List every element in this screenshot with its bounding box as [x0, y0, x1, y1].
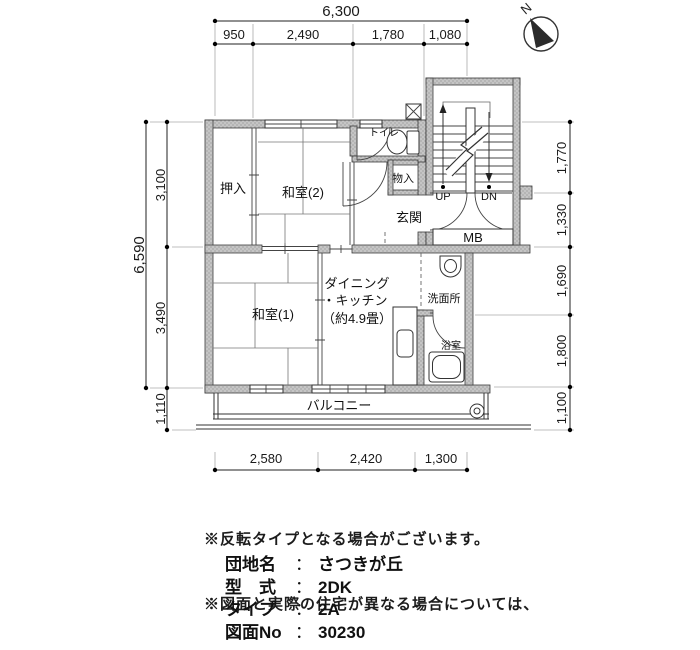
- dim-top-2: 2,490: [287, 27, 320, 42]
- dim-bottom-1: 2,580: [250, 451, 283, 466]
- info-label: 団地名: [225, 554, 293, 577]
- shaft-x-symbol: [406, 104, 421, 119]
- dim-top-1: 950: [223, 27, 245, 42]
- info-colon: ：: [295, 554, 312, 577]
- bathtub-fixture: [429, 352, 464, 382]
- dim-left-1: 3,100: [153, 169, 168, 202]
- stairwell: [433, 102, 513, 245]
- label-oshiire: 押入: [220, 181, 246, 196]
- dim-top-3: 1,780: [372, 27, 405, 42]
- window-top-washitsu2: [265, 120, 337, 128]
- label-up: UP: [435, 191, 450, 203]
- down-arrowhead: [486, 173, 493, 182]
- label-monoire: 物入: [392, 171, 414, 185]
- label-dk-2: ・キッチン: [322, 293, 387, 308]
- dim-bottom-2: 2,420: [350, 451, 383, 466]
- label-senmenjo: 洗面所: [428, 292, 461, 305]
- oshiire-sliding-door: [249, 128, 259, 245]
- dim-right-3: 1,690: [554, 265, 569, 298]
- dk-entry-opening: [330, 245, 352, 253]
- dim-top-4: 1,080: [429, 27, 462, 42]
- kitchen-counter: [393, 307, 417, 385]
- info-label: タイプ: [225, 599, 293, 622]
- label-genkan: 玄関: [396, 210, 422, 225]
- dim-left-3: 1,110: [153, 393, 168, 425]
- info-line-zumen-no: 図面No：30230: [225, 622, 403, 645]
- floor-plan-page: 6,300 950 2,490 1,780 1,080 6,590 3,100 …: [0, 0, 700, 650]
- label-meter-box: MB: [463, 230, 483, 245]
- dim-right-2: 1,330: [554, 204, 569, 237]
- info-line-type: タイプ：2A: [225, 599, 403, 622]
- label-dk-3: （約4.9畳）: [322, 311, 392, 326]
- window-bottom-balcony-door: [312, 385, 385, 393]
- info-value: 30230: [318, 623, 365, 642]
- title-block: 団地名：さつきが丘 型 式：2DK タイプ：2A 図面No：30230: [225, 554, 403, 644]
- info-colon: ：: [295, 577, 312, 600]
- info-colon: ：: [295, 599, 312, 622]
- info-value: さつきが丘: [318, 555, 403, 574]
- label-washitsu1: 和室(1): [252, 307, 294, 322]
- compass-needle: [530, 18, 554, 48]
- washitsu-fusuma: [262, 243, 318, 254]
- up-arrowhead: [440, 104, 447, 113]
- washbasin-fixture: [440, 256, 461, 277]
- dim-bottom-3: 1,300: [425, 451, 458, 466]
- dim-top-total: 6,300: [322, 3, 360, 20]
- dim-right-5: 1,100: [554, 392, 569, 425]
- dim-right-1: 1,770: [554, 142, 569, 175]
- washitsu2-hall-partition: [347, 162, 357, 245]
- tatami-lines: [213, 128, 350, 385]
- label-bath: 浴室: [441, 339, 461, 352]
- compass-north-label: N: [518, 0, 535, 17]
- info-line-katashiki: 型 式：2DK: [225, 577, 403, 600]
- dim-left-2: 3,490: [153, 302, 168, 335]
- window-top-toilet: [360, 120, 382, 128]
- label-balcony: バルコニー: [307, 398, 372, 413]
- dim-right-4: 1,800: [554, 335, 569, 368]
- label-down: DN: [481, 191, 497, 203]
- label-dk-1: ダイニング: [324, 276, 389, 291]
- info-line-danchi: 団地名：さつきが丘: [225, 554, 403, 577]
- info-value: 2A: [318, 600, 340, 619]
- label-washitsu2: 和室(2): [282, 185, 324, 200]
- info-colon: ：: [295, 622, 312, 645]
- info-value: 2DK: [318, 578, 352, 597]
- window-bottom-washitsu1: [250, 385, 283, 393]
- compass: N: [518, 0, 558, 51]
- note-line: ※反転タイプとなる場合がございます。: [204, 529, 539, 551]
- info-label: 図面No: [225, 622, 293, 645]
- label-toilet: トイレ: [369, 128, 399, 139]
- dim-left-total: 6,590: [131, 236, 148, 274]
- info-label: 型 式: [225, 577, 293, 600]
